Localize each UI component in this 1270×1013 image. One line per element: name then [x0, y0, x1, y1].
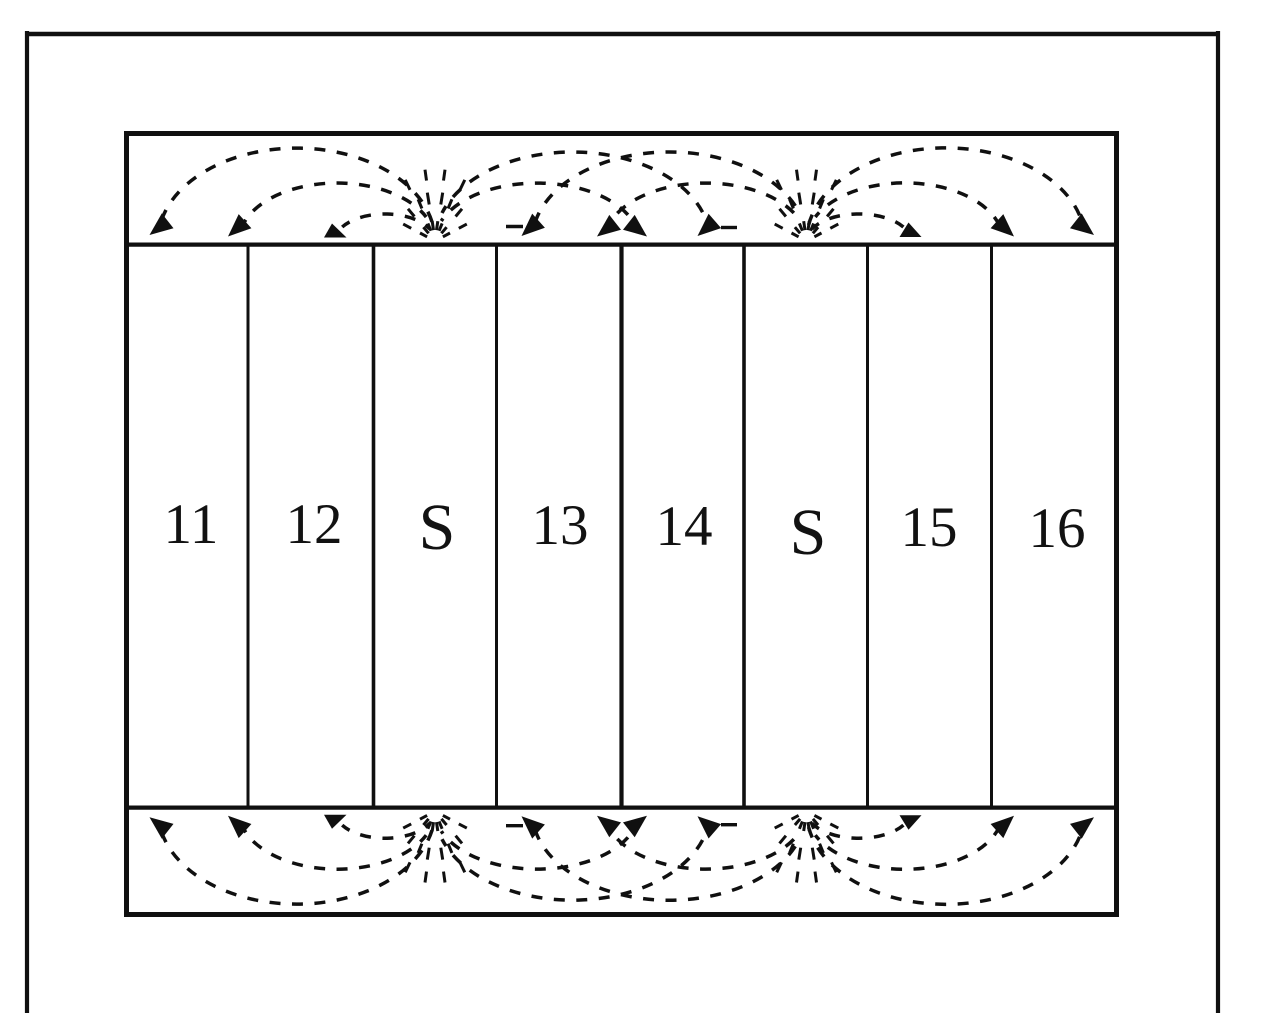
svg-text:11: 11	[164, 493, 219, 556]
svg-text:13: 13	[532, 494, 589, 557]
svg-text:S: S	[790, 496, 827, 569]
svg-text:16: 16	[1029, 497, 1086, 560]
svg-text:14: 14	[656, 495, 713, 558]
svg-text:S: S	[419, 491, 456, 564]
svg-text:15: 15	[901, 496, 958, 559]
svg-text:12: 12	[286, 493, 343, 556]
